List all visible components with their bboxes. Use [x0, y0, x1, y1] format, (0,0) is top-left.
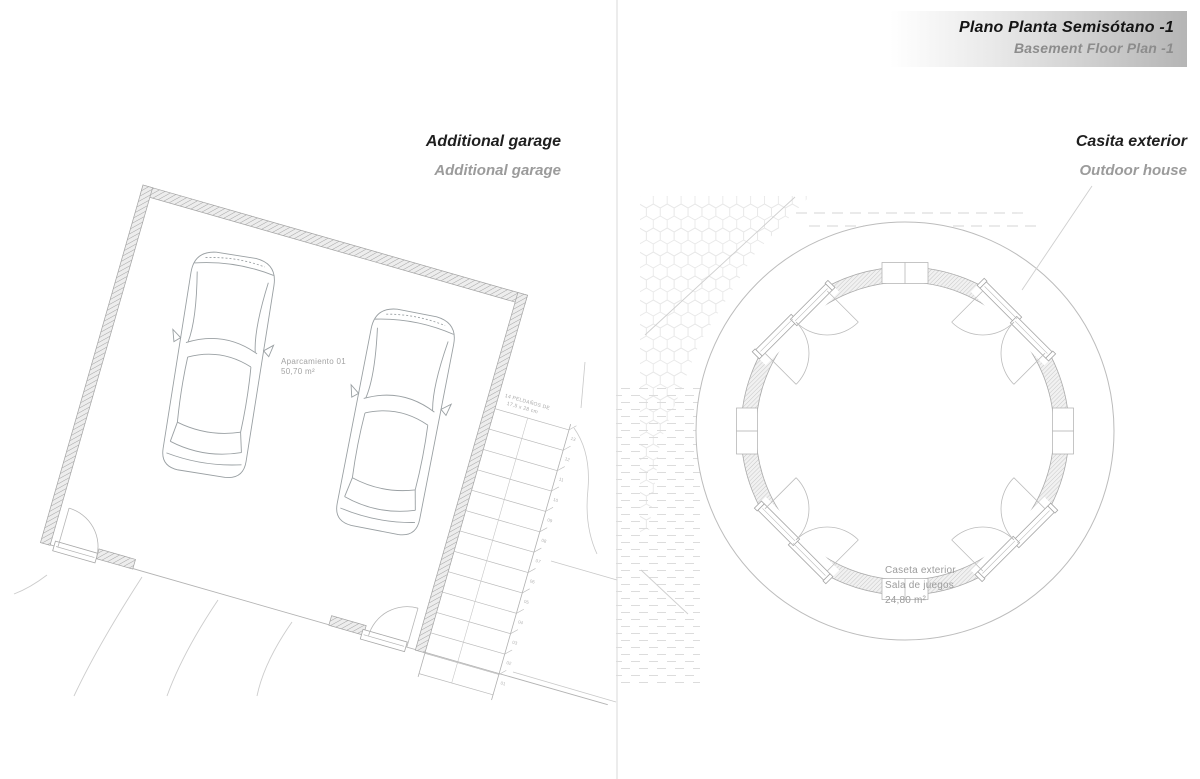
step-number: 07: [535, 558, 542, 564]
step-number: 02: [506, 660, 513, 666]
floor-plan-drawing: 13 12 11 10 09 08 07 06 05 04 03 02 01 1…: [0, 0, 1200, 779]
garage-room-label: Aparcamiento 01 50,70 m²: [281, 357, 346, 377]
step-number: 01: [500, 680, 507, 686]
garage-plan: 13 12 11 10 09 08 07 06 05 04 03 02 01 1…: [14, 185, 710, 731]
step-number: 03: [512, 640, 519, 646]
sheet-title-es: Plano Planta Semisótano -1: [890, 17, 1174, 38]
house-room-name: Caseta exterior: [885, 563, 956, 578]
terrain-contours: [14, 575, 292, 696]
house-room-area: 24,80 m²: [885, 593, 956, 608]
house-panel-title: Casita exterior Outdoor house: [900, 133, 1187, 180]
stair-note: 14 PELDAÑOS DE 17,5 x 28 cm: [502, 392, 551, 418]
staircase: 13 12 11 10 09 08 07 06 05 04 03 02 01 1…: [418, 390, 584, 702]
house-room-use: Sala de juegos: [885, 578, 956, 593]
house-title-primary: Casita exterior: [900, 133, 1187, 151]
wall-stub-left: [96, 549, 135, 569]
step-number: 08: [541, 538, 548, 544]
wall-stub-right: [329, 616, 366, 636]
step-number: 12: [564, 456, 571, 462]
dash-terrain: [616, 388, 700, 686]
step-number: 10: [553, 497, 560, 503]
step-number: 13: [570, 436, 577, 442]
house-room-label: Caseta exterior Sala de juegos 24,80 m²: [885, 563, 956, 608]
garage-room-name: Aparcamiento 01: [281, 357, 346, 367]
stair-outer-edge: [492, 424, 571, 700]
step-number: 04: [517, 619, 524, 625]
wall-left: [40, 185, 152, 545]
garage-panel-title: Additional garage Additional garage: [260, 133, 561, 180]
garage-walls: [40, 185, 527, 653]
step-number: 06: [529, 578, 536, 584]
step-number: 09: [547, 517, 554, 523]
sheet: 13 12 11 10 09 08 07 06 05 04 03 02 01 1…: [0, 0, 1200, 779]
house-title-secondary: Outdoor house: [900, 162, 1187, 180]
garage-title-primary: Additional garage: [260, 133, 561, 151]
car-2: [325, 303, 467, 539]
stair-inner-edge-low: [418, 653, 425, 677]
step-number: 05: [523, 599, 530, 605]
outdoor-house-plan: [616, 186, 1114, 686]
stair-edge-ticks: [499, 424, 577, 676]
garage-room-area: 50,70 m²: [281, 367, 346, 377]
car-1: [151, 247, 286, 481]
stair-treads: [419, 409, 569, 695]
garage-title-secondary: Additional garage: [260, 162, 561, 180]
step-number: 11: [558, 477, 564, 483]
sheet-title-en: Basement Floor Plan -1: [890, 38, 1174, 58]
sheet-header: Plano Planta Semisótano -1 Basement Floo…: [890, 11, 1187, 67]
